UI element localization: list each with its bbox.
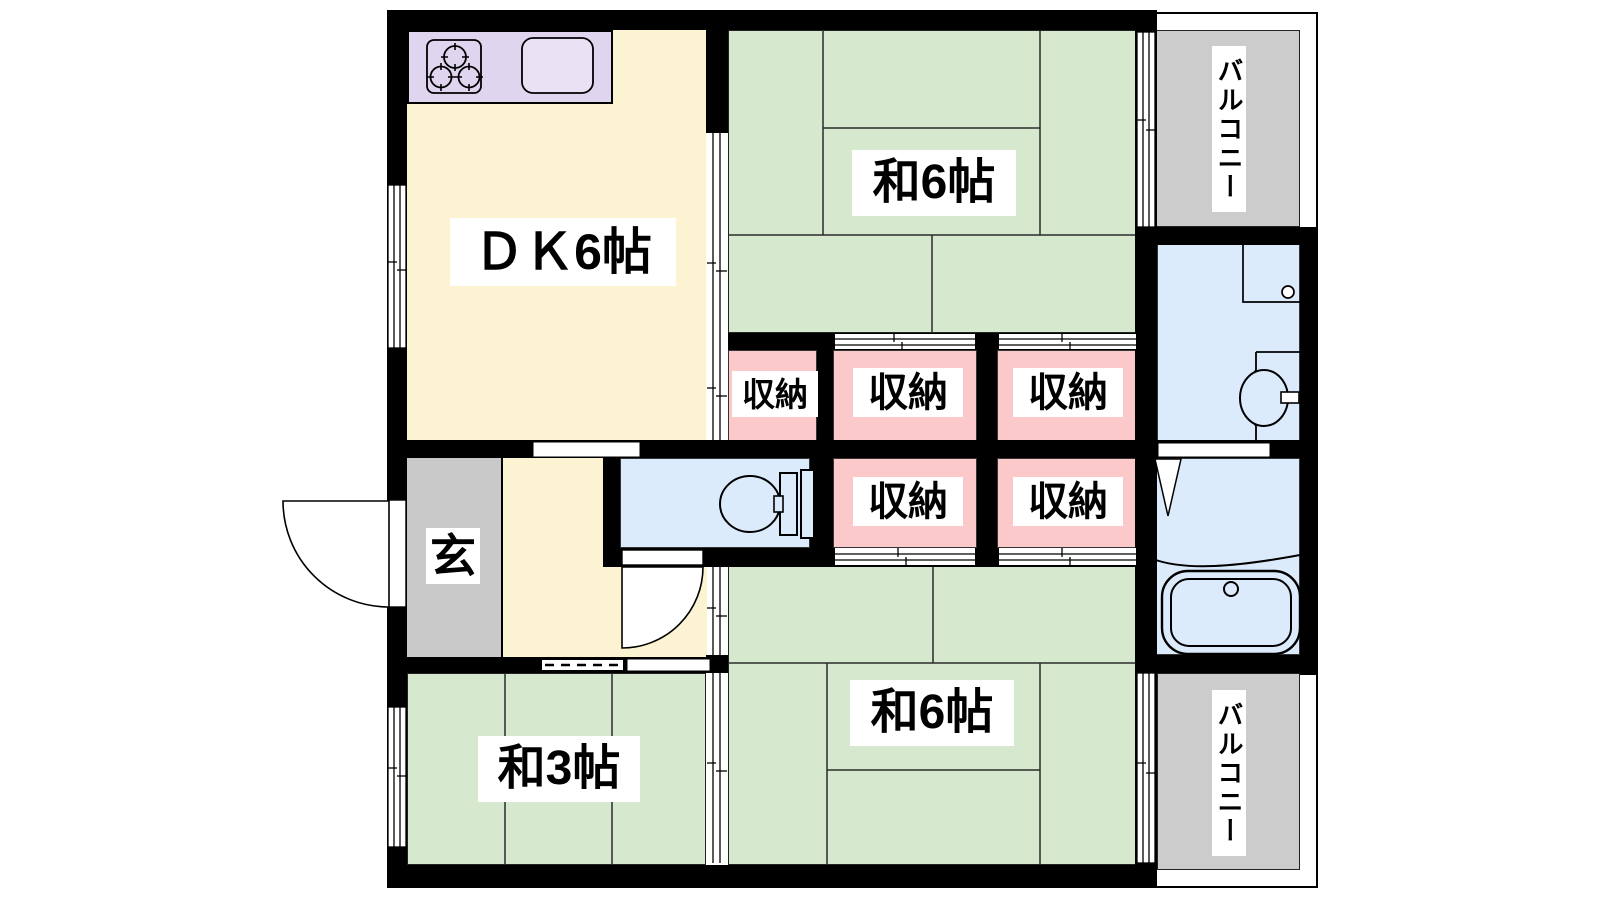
kitchen-fixtures: [427, 38, 593, 93]
pan-drain: [1282, 286, 1294, 298]
label-storage-3: 収納: [1013, 368, 1123, 417]
toilet-bowl: [720, 476, 780, 532]
opening-hall-wa3-dashed: [542, 659, 623, 671]
fusuma-storage-4: [835, 548, 975, 565]
label-storage-5: 収納: [1013, 477, 1123, 526]
label-storage-4: 収納: [853, 477, 963, 526]
window-dk-left: [388, 185, 406, 348]
floorplan-linework: [0, 0, 1600, 900]
door-entrance-panel: [388, 500, 406, 607]
fusuma-storage-5: [999, 548, 1136, 565]
label-dk: ＤＫ6帖: [450, 218, 676, 286]
label-storage-1: 収納: [732, 371, 818, 417]
fusuma-wa3-wa6: [707, 673, 727, 863]
fusuma-dk-spine: [707, 133, 727, 440]
window-wa6-bottom-balcony: [1137, 673, 1155, 863]
label-balcony-top: バルコニー: [1212, 46, 1246, 212]
label-wa6-bottom: 和6帖: [850, 680, 1014, 746]
fusuma-storage-3: [999, 334, 1136, 349]
window-wa6-top-balcony: [1137, 32, 1155, 227]
bath-fixtures: [1153, 555, 1300, 654]
label-genkan: 玄: [426, 528, 480, 584]
washroom-fixtures: [1240, 245, 1300, 442]
window-wa3-left: [388, 707, 406, 847]
opening-dk-hall: [533, 442, 640, 457]
fusuma-storage-2: [835, 334, 975, 349]
kitchen-sink: [522, 38, 593, 93]
label-balcony-bottom: バルコニー: [1212, 690, 1246, 856]
label-wa3: 和3帖: [478, 736, 640, 802]
bathtub-outer: [1162, 571, 1300, 654]
toilet-door-swing: [622, 567, 703, 648]
door-toilet-panel: [622, 550, 703, 565]
toilet-cistern: [801, 470, 814, 538]
entrance-door-swing: [283, 501, 389, 607]
door-hall-wa3: [627, 659, 710, 671]
fusuma-hall-wa6: [707, 567, 727, 655]
toilet-flush-notch: [774, 496, 783, 512]
basin-tap: [1281, 392, 1299, 403]
label-wa6-top: 和6帖: [852, 150, 1016, 216]
floorplan: ＤＫ6帖 和6帖 和6帖 和3帖 玄 収納 収納 収納 収納 収納 バルコニー …: [0, 0, 1600, 900]
tub-deck-edge: [1153, 555, 1300, 566]
toilet-fixture: [720, 470, 814, 538]
opening-washroom-bath: [1158, 443, 1270, 457]
label-storage-2: 収納: [853, 368, 963, 417]
folding-bath-door: [1155, 459, 1181, 516]
